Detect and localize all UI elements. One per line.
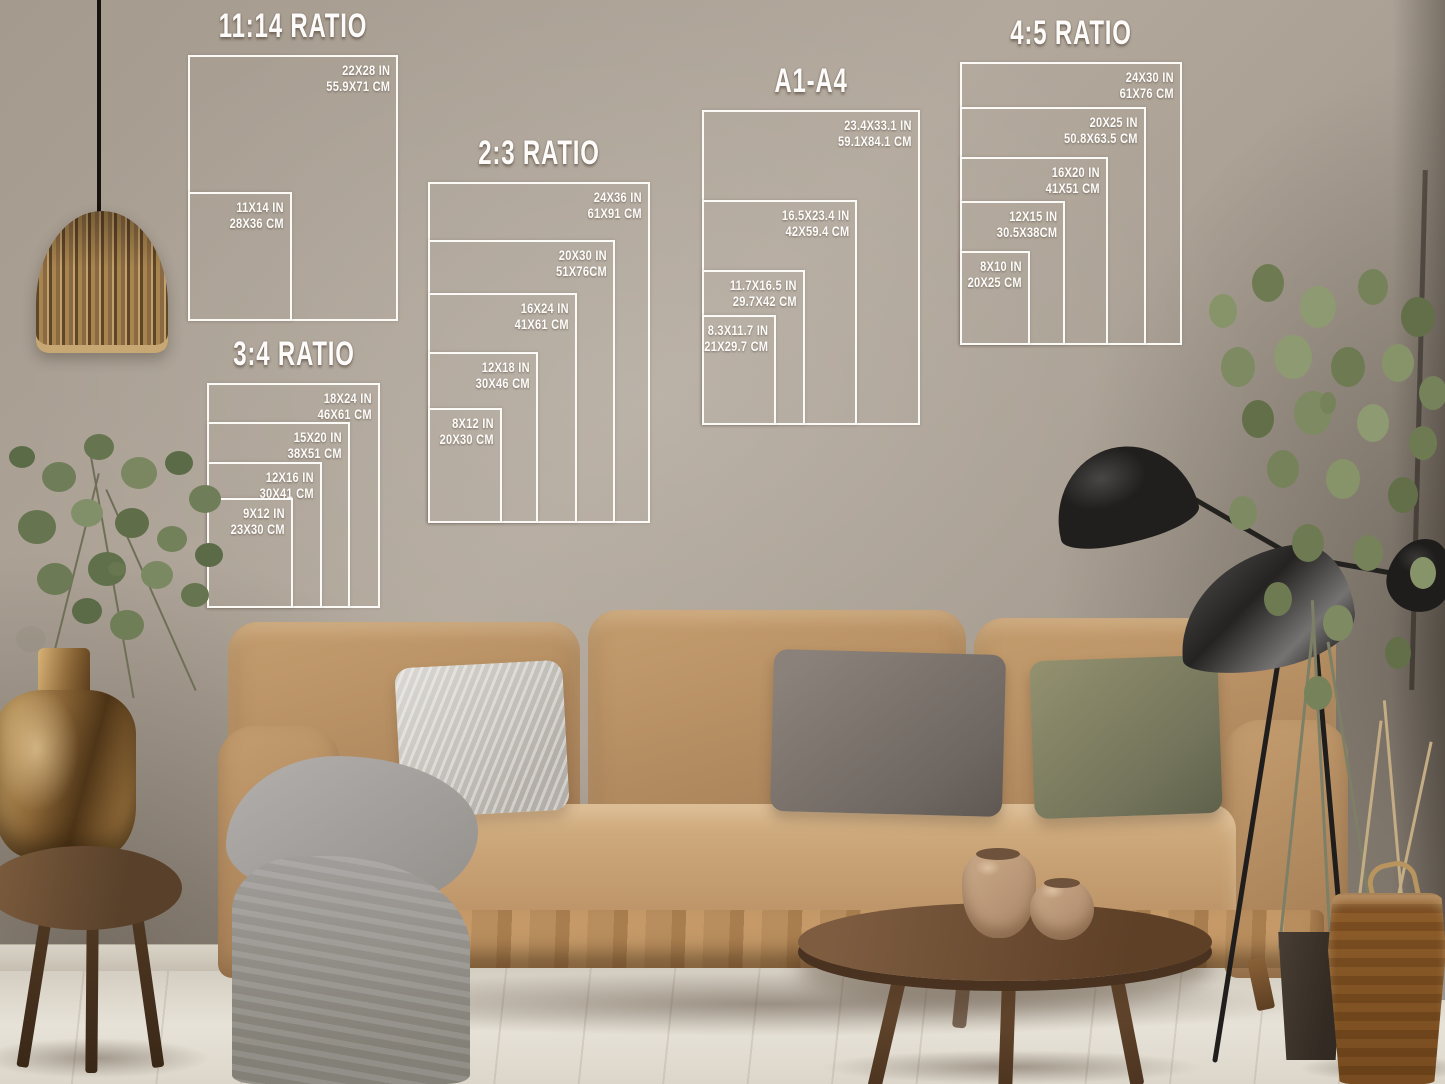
ratio-title: 3:4 RATIO (233, 338, 354, 373)
table-vase-large (962, 850, 1036, 938)
size-box-8x12: 8X12 IN20X30 CM (428, 408, 502, 523)
brass-vase (0, 690, 136, 858)
table-vase-opening (1044, 878, 1080, 888)
pillow-dark-gray (770, 649, 1006, 817)
size-label: 24X36 IN61X91 CM (588, 189, 642, 222)
brass-vase-neck (38, 648, 90, 696)
ratio-group-11-14: 11:14 RATIO 22X28 IN55.9X71 CM 11X14 IN2… (188, 55, 398, 321)
ratio-title: 2:3 RATIO (478, 137, 599, 172)
size-label: 23.4X33.1 IN59.1X84.1 CM (838, 117, 912, 150)
size-box-11x14: 11X14 IN28X36 CM (188, 192, 292, 321)
size-label: 8X12 IN20X30 CM (440, 415, 494, 448)
size-label: 12X18 IN30X46 CM (476, 359, 530, 392)
throw-blanket-drape (232, 856, 470, 1084)
stool-leg (85, 925, 98, 1073)
plant-right-leaves (1320, 392, 1336, 414)
size-label: 16X20 IN41X51 CM (1046, 164, 1100, 197)
living-room-size-guide-photo: 11:14 RATIO 22X28 IN55.9X71 CM 11X14 IN2… (0, 0, 1445, 1084)
pendant-cord (97, 0, 101, 218)
size-label: 8X10 IN20X25 CM (968, 258, 1022, 291)
ratio-title: 11:14 RATIO (219, 10, 367, 45)
jute-basket (1328, 893, 1445, 1084)
size-label: 22X28 IN55.9X71 CM (326, 62, 390, 95)
size-label: 8.3X11.7 IN21X29.7 CM (704, 322, 768, 355)
size-label: 11.7X16.5 IN29.7X42 CM (730, 277, 797, 310)
size-label: 24X30 IN61X76 CM (1120, 69, 1174, 102)
ratio-group-4-5: 4:5 RATIO 24X30 IN61X76 CM 20X25 IN50.8X… (960, 62, 1182, 345)
ratio-group-2-3: 2:3 RATIO 24X36 IN61X91 CM 20X30 IN51X76… (428, 182, 650, 523)
size-box-a4: 8.3X11.7 IN21X29.7 CM (702, 315, 776, 425)
plant-left-leaves (108, 562, 126, 576)
table-vase-opening (976, 848, 1020, 860)
size-box-8x10: 8X10 IN20X25 CM (960, 251, 1030, 345)
size-label: 11X14 IN28X36 CM (230, 199, 284, 232)
ratio-group-a1-a4: A1-A4 23.4X33.1 IN59.1X84.1 CM 16.5X23.4… (702, 110, 920, 425)
size-label: 18X24 IN46X61 CM (318, 390, 372, 423)
size-label: 15X20 IN38X51 CM (288, 429, 342, 462)
size-box-9x12: 9X12 IN23X30 CM (207, 498, 293, 608)
size-label: 16X24 IN41X61 CM (515, 300, 569, 333)
ratio-title: 4:5 RATIO (1010, 17, 1131, 52)
size-label: 20X25 IN50.8X63.5 CM (1064, 114, 1138, 147)
size-label: 20X30 IN51X76CM (556, 247, 607, 280)
pillow-olive (1029, 655, 1222, 819)
size-label: 16.5X23.4 IN42X59.4 CM (781, 207, 849, 240)
size-label: 9X12 IN23X30 CM (231, 505, 285, 538)
ratio-group-3-4: 3:4 RATIO 18X24 IN46X61 CM 15X20 IN38X51… (207, 383, 380, 608)
ratio-title: A1-A4 (774, 65, 847, 100)
size-label: 12X15 IN30.5X38CM (996, 208, 1057, 241)
